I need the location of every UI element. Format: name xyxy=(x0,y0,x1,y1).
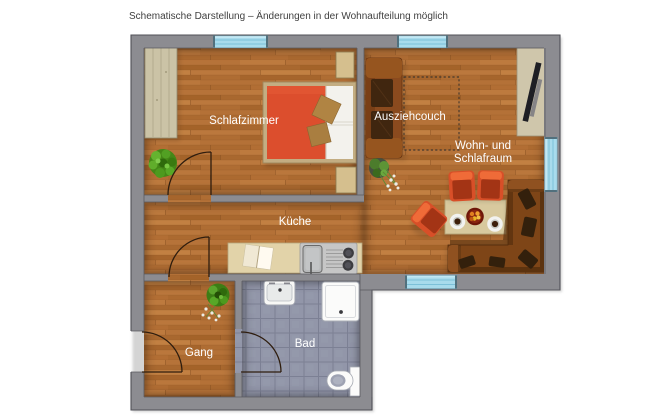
svg-text:Bad: Bad xyxy=(295,338,315,350)
svg-text:Schematische Darstellung – Änd: Schematische Darstellung – Änderungen in… xyxy=(129,10,448,22)
svg-text:Gang: Gang xyxy=(185,347,213,359)
svg-text:Wohn- und: Wohn- und xyxy=(455,140,511,152)
svg-text:Ausziehcouch: Ausziehcouch xyxy=(374,111,446,123)
svg-text:Schlafzimmer: Schlafzimmer xyxy=(209,115,279,127)
svg-text:Schlafraum: Schlafraum xyxy=(454,153,512,165)
svg-text:Küche: Küche xyxy=(279,216,312,228)
